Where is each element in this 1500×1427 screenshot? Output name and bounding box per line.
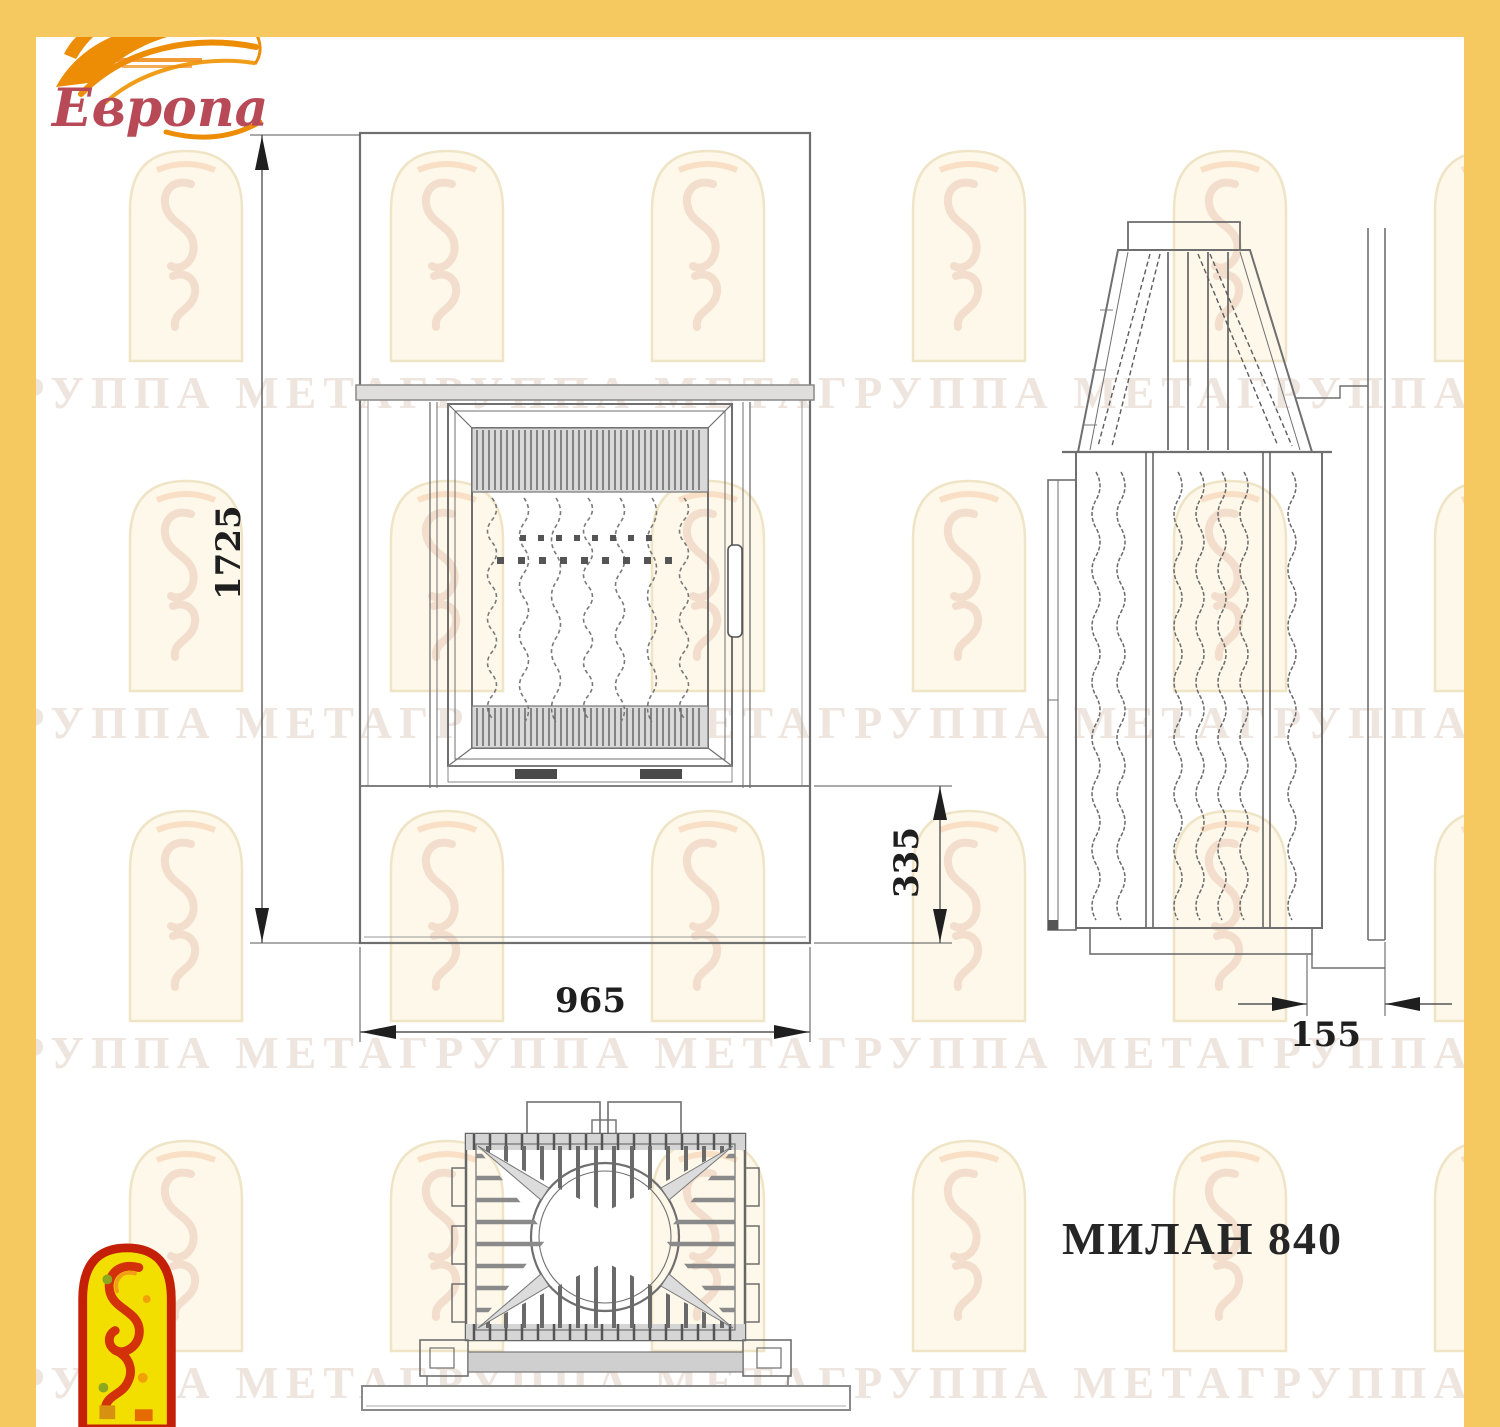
side-view-drawing (1048, 222, 1385, 968)
dimension-annotations: 1725 335 965 (209, 135, 1452, 1055)
top-view-drawing (362, 1102, 850, 1410)
dimension-plinth-height: 335 (814, 786, 952, 943)
dimension-height-label: 1725 (209, 505, 249, 600)
front-view-drawing (356, 133, 814, 943)
dimension-overall-height: 1725 (209, 135, 360, 943)
model-title: МИЛАН 840 (1062, 1212, 1402, 1265)
dimension-width-label: 965 (555, 981, 626, 1021)
side-door-profile (1048, 480, 1076, 930)
dimension-wall-depth: 155 (1238, 942, 1452, 1055)
dimension-depth-label: 155 (1290, 1015, 1361, 1055)
door-handle (728, 545, 742, 637)
dimension-plinth-label: 335 (887, 827, 927, 898)
dimension-overall-width: 965 (360, 947, 810, 1042)
product-drawing-page: ГРУППА МЕТАГРУППА МЕТАГРУППА МЕТАГРУППА … (0, 0, 1500, 1427)
flue-opening (531, 1163, 679, 1311)
europa-logo: Европа (26, 2, 276, 152)
brand-text: Европа (50, 78, 268, 139)
meta-firebird-emblem-icon (76, 1240, 178, 1427)
convector-fins (1092, 472, 1296, 920)
flame-pattern (488, 498, 689, 723)
burner-dots (497, 535, 672, 564)
